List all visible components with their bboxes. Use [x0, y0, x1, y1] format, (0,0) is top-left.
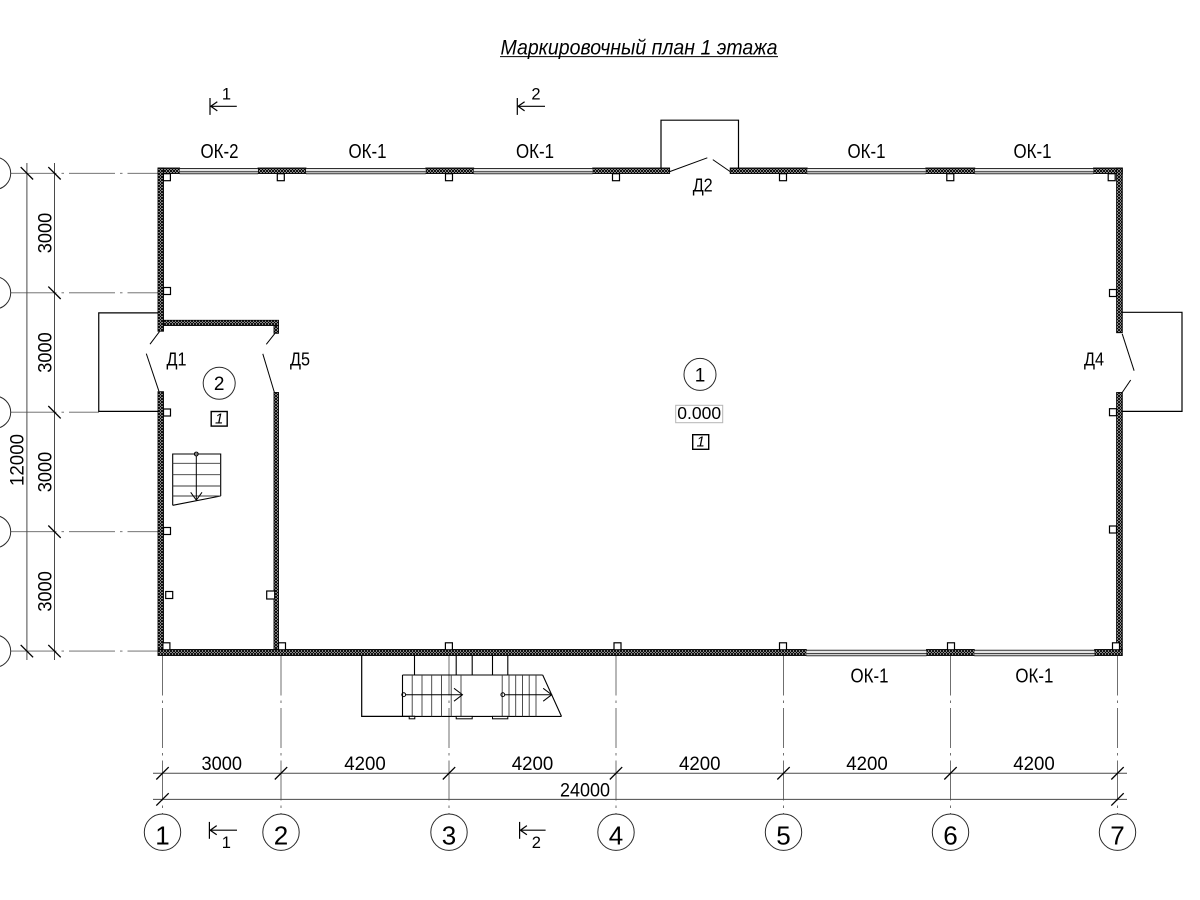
svg-text:3000: 3000 — [35, 332, 57, 373]
svg-text:4200: 4200 — [344, 753, 386, 775]
svg-text:3000: 3000 — [35, 213, 57, 254]
svg-text:4200: 4200 — [679, 753, 721, 775]
svg-text:0.000: 0.000 — [677, 403, 721, 423]
svg-text:2: 2 — [531, 86, 540, 104]
svg-text:Д5: Д5 — [290, 349, 310, 370]
svg-text:4200: 4200 — [846, 753, 888, 775]
svg-text:1: 1 — [695, 365, 706, 386]
svg-text:ОК-1: ОК-1 — [516, 141, 554, 163]
svg-text:3000: 3000 — [35, 452, 57, 493]
svg-text:ОК-1: ОК-1 — [1014, 141, 1052, 163]
svg-text:4200: 4200 — [1013, 753, 1055, 775]
svg-text:3000: 3000 — [35, 571, 57, 612]
svg-text:Д1: Д1 — [167, 349, 187, 370]
svg-text:Маркировочный план 1 этажа: Маркировочный план 1 этажа — [501, 36, 778, 59]
svg-text:Д2: Д2 — [693, 174, 713, 195]
svg-text:ОК-1: ОК-1 — [848, 141, 886, 163]
svg-text:Д4: Д4 — [1084, 349, 1104, 370]
svg-text:3000: 3000 — [202, 753, 243, 775]
svg-text:4200: 4200 — [512, 753, 554, 775]
svg-text:12000: 12000 — [7, 434, 29, 486]
svg-text:5: 5 — [776, 821, 790, 851]
svg-text:2: 2 — [532, 834, 541, 852]
svg-text:2: 2 — [274, 821, 288, 851]
svg-text:2: 2 — [214, 374, 225, 395]
svg-text:1: 1 — [222, 86, 231, 104]
svg-text:ОК-2: ОК-2 — [201, 141, 239, 163]
svg-text:ОК-1: ОК-1 — [1015, 665, 1053, 687]
svg-text:7: 7 — [1110, 821, 1124, 851]
svg-text:ОК-1: ОК-1 — [851, 665, 889, 687]
svg-text:4: 4 — [609, 821, 623, 851]
svg-text:1: 1 — [222, 834, 231, 852]
svg-text:1: 1 — [697, 434, 705, 451]
svg-text:24000: 24000 — [560, 779, 610, 801]
svg-text:6: 6 — [943, 821, 957, 851]
svg-text:1: 1 — [215, 410, 223, 427]
svg-text:3: 3 — [442, 821, 456, 851]
svg-text:ОК-1: ОК-1 — [349, 141, 387, 163]
svg-text:1: 1 — [155, 821, 169, 851]
